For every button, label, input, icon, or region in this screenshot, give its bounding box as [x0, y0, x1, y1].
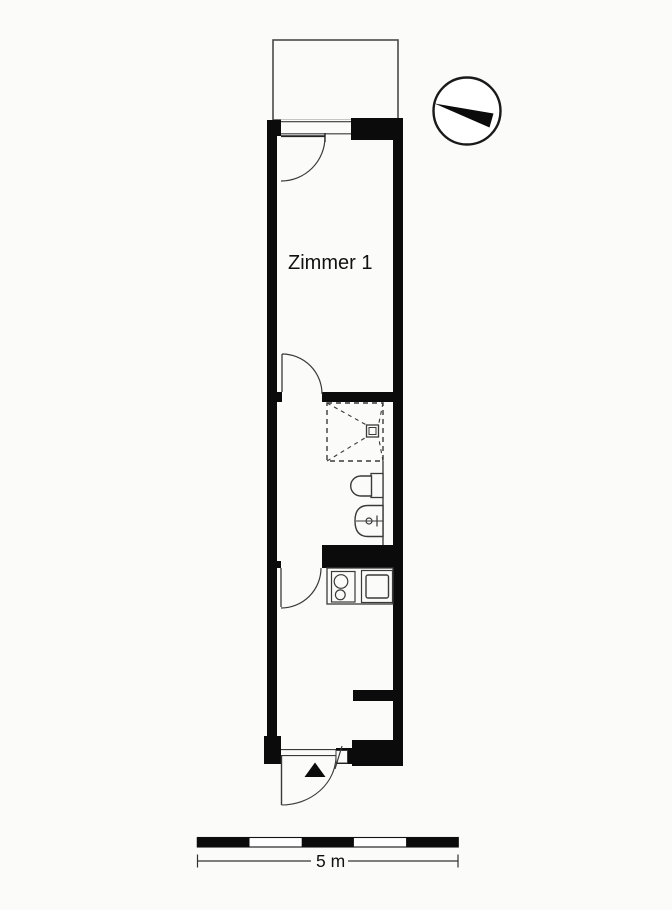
- balcony: [273, 40, 398, 120]
- room-label: Zimmer 1: [288, 252, 372, 274]
- scale-bar: [197, 838, 458, 848]
- toilet: [351, 474, 383, 498]
- shower-drain: [367, 425, 379, 437]
- bathroom-wall: [267, 392, 403, 402]
- kitchen-counter: [327, 568, 393, 604]
- scale-label: 5 m: [316, 851, 345, 871]
- compass-icon: [434, 78, 501, 145]
- room-door: [282, 354, 322, 394]
- shower: [327, 403, 383, 461]
- wash-basin: [355, 506, 383, 537]
- hall-stub-wall: [353, 690, 403, 701]
- hall-door: [281, 568, 321, 608]
- kitchen-wall: [267, 545, 403, 568]
- floor-plan-page: Zimmer 1: [0, 0, 672, 910]
- entrance-arrow-icon: [305, 763, 326, 778]
- floor-plan-canvas: Zimmer 1: [0, 0, 672, 910]
- exterior-walls: [264, 118, 403, 766]
